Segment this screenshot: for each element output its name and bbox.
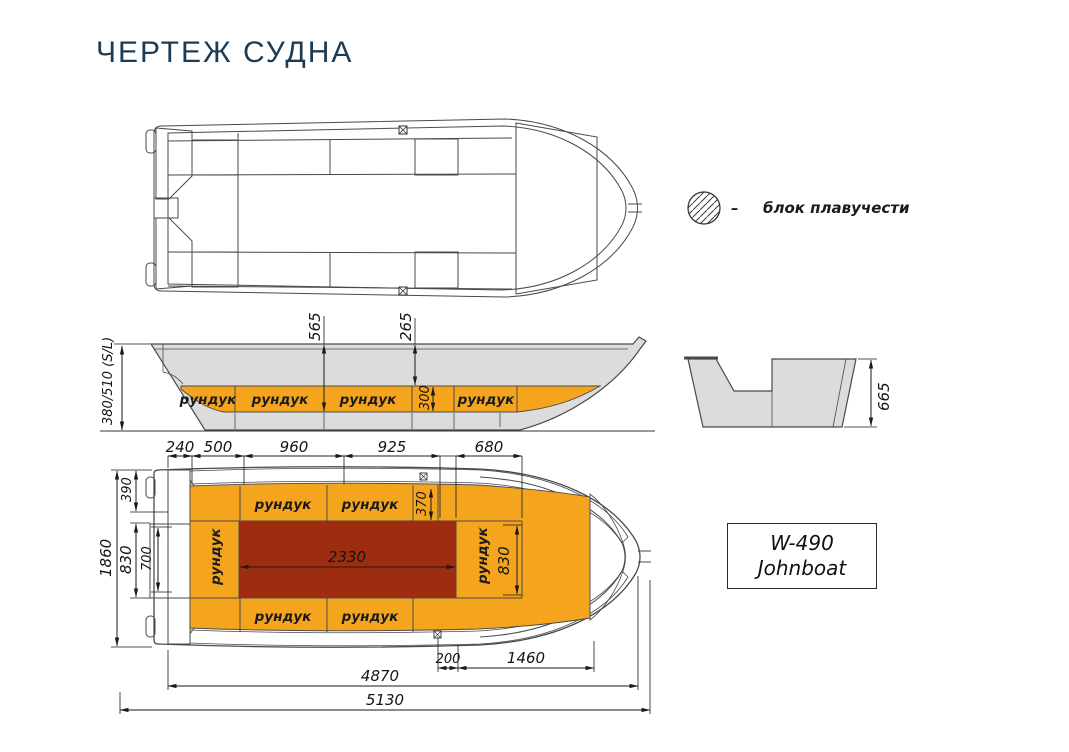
cleat-icon	[434, 631, 441, 638]
dim-240: 240	[166, 438, 195, 456]
bow-handle	[628, 204, 642, 212]
dim-925: 925	[378, 438, 407, 456]
dim-665: 665	[875, 382, 893, 411]
buoyancy-block	[192, 140, 238, 175]
dim-680: 680	[475, 438, 504, 456]
hull-outline-top	[154, 119, 638, 297]
locker-label: рундук	[341, 609, 399, 625]
buoyancy-block	[415, 139, 458, 175]
dim-side-height: 380/510 (S/L)	[101, 337, 116, 425]
dim-5130: 5130	[366, 691, 404, 709]
drawing-page: ЧЕРТЕЖ СУДНА	[0, 0, 1069, 752]
gunwale-inner-line	[168, 126, 626, 290]
cleat-icon	[420, 473, 427, 480]
dim-1460: 1460	[507, 649, 545, 667]
top-view	[146, 119, 642, 297]
dim-200: 200	[436, 652, 461, 667]
locker-label: рундук	[457, 392, 515, 408]
locker-label: рундук	[339, 392, 397, 408]
model-type: Johnboat	[758, 556, 847, 581]
dim-265: 265	[397, 312, 415, 341]
dim-390: 390	[120, 477, 135, 502]
locker-label: рундук	[254, 609, 312, 625]
dim-960: 960	[280, 438, 309, 456]
buoyancy-block-corner	[156, 218, 192, 289]
buoyancy-symbol-icon	[688, 192, 720, 224]
boat-drawing: – блок плавучести рундук рундук рундук р…	[0, 0, 1069, 752]
buoyancy-block	[415, 252, 458, 288]
dim-500: 500	[204, 438, 233, 456]
buoyancy-block-bow	[516, 123, 597, 294]
cleat-icon	[399, 287, 407, 295]
dim-565: 565	[306, 312, 324, 341]
hull-profile	[151, 337, 646, 430]
locker-label: рундук	[208, 528, 224, 586]
dim-4870: 4870	[361, 667, 399, 685]
cleat-icon	[399, 126, 407, 134]
legend-label: блок плавучести	[763, 199, 910, 217]
dim-2330: 2330	[328, 548, 366, 566]
locker-label: рундук	[341, 497, 399, 513]
buoyancy-block	[192, 252, 238, 287]
dim-370: 370	[415, 491, 430, 516]
dim-830-right: 830	[495, 546, 513, 575]
model-label-box: W-490 Johnboat	[727, 523, 877, 589]
legend-dash: –	[731, 199, 739, 217]
side-view: рундук рундук рундук рундук 380/510 (S/L…	[100, 312, 655, 431]
model-name: W-490	[770, 531, 834, 556]
dim-300: 300	[418, 385, 433, 410]
legend: – блок плавучести	[688, 192, 910, 224]
locker-label: рундук	[475, 527, 491, 585]
motor-well-top	[154, 198, 178, 218]
locker-label: рундук	[254, 497, 312, 513]
dim-1860: 1860	[97, 539, 115, 577]
buoyancy-block-corner	[156, 128, 192, 199]
dim-700: 700	[140, 546, 155, 571]
dim-830-left: 830	[117, 545, 135, 574]
locker-label: рундук	[179, 392, 237, 408]
locker-label: рундук	[251, 392, 309, 408]
plan-view: рундук рундук рундук рундук рундук рунду…	[97, 438, 651, 714]
transom-view: 665	[684, 358, 893, 427]
